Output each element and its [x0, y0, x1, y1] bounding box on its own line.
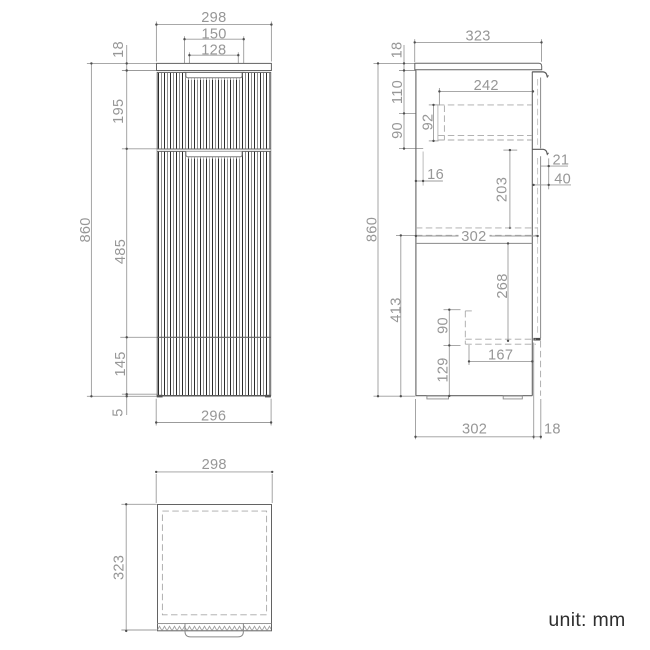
svg-text:40: 40 — [554, 171, 571, 187]
svg-text:302: 302 — [461, 229, 486, 245]
svg-text:150: 150 — [201, 26, 226, 42]
svg-text:860: 860 — [365, 217, 381, 242]
svg-text:21: 21 — [552, 153, 569, 169]
svg-text:860: 860 — [78, 217, 94, 242]
svg-text:167: 167 — [488, 347, 513, 363]
svg-text:unit: mm: unit: mm — [548, 609, 625, 631]
svg-text:5: 5 — [110, 408, 126, 416]
svg-text:90: 90 — [435, 317, 451, 334]
svg-text:298: 298 — [202, 457, 227, 473]
svg-text:296: 296 — [201, 408, 226, 424]
svg-text:110: 110 — [390, 80, 406, 104]
svg-text:485: 485 — [113, 239, 129, 264]
svg-text:203: 203 — [494, 177, 510, 202]
svg-text:195: 195 — [111, 99, 127, 124]
svg-text:18: 18 — [544, 421, 561, 437]
svg-text:268: 268 — [495, 273, 511, 298]
svg-text:92: 92 — [421, 114, 437, 131]
svg-text:18: 18 — [389, 42, 405, 59]
svg-text:16: 16 — [427, 167, 444, 183]
svg-text:145: 145 — [113, 351, 129, 376]
svg-text:302: 302 — [462, 421, 487, 437]
svg-text:128: 128 — [201, 42, 226, 58]
svg-text:129: 129 — [435, 357, 451, 382]
svg-text:323: 323 — [465, 28, 490, 44]
svg-text:413: 413 — [389, 297, 405, 322]
svg-text:323: 323 — [112, 555, 128, 580]
svg-text:90: 90 — [390, 122, 406, 139]
svg-text:18: 18 — [111, 41, 127, 58]
svg-text:298: 298 — [201, 10, 226, 26]
svg-text:242: 242 — [474, 78, 499, 94]
